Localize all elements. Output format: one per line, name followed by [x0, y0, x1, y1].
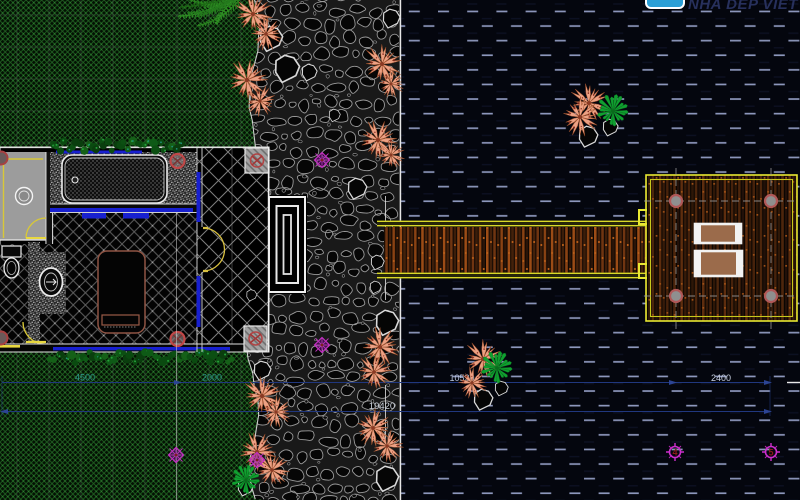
svg-text:2000: 2000: [202, 373, 222, 383]
svg-text:5: 5: [768, 448, 773, 458]
svg-text:19420: 19420: [369, 401, 395, 412]
svg-text:4500: 4500: [75, 373, 95, 383]
svg-text:2400: 2400: [711, 373, 731, 383]
svg-text:4: 4: [672, 448, 677, 458]
svg-text:NHA DEP VIET: NHA DEP VIET: [688, 0, 799, 13]
